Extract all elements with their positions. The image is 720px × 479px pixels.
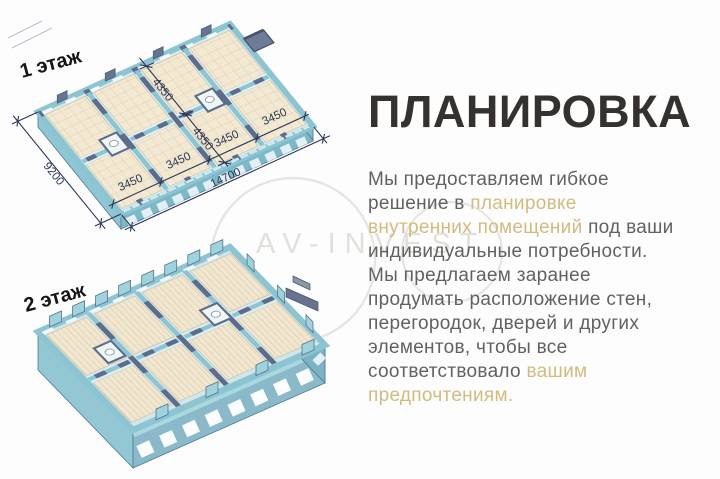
paragraph-text: Мы предоставляем гибкое	[368, 169, 609, 190]
paragraph-line: Мы предоставляем гибкое	[368, 168, 713, 192]
paragraph-line: внутренних помещений под ваши	[368, 216, 713, 240]
paragraph-text: элементов, чтобы все	[368, 337, 567, 358]
paragraph-line: перегородок, дверей и других	[368, 312, 713, 336]
paragraph-text: Мы предлагаем заранее	[368, 265, 591, 286]
description-paragraph: Мы предоставляем гибкое решение в планир…	[368, 168, 713, 408]
highlighted-text: внутренних помещений	[368, 217, 583, 238]
paragraph-line: соответствовало вашим	[368, 360, 713, 384]
paragraph-line: элементов, чтобы все	[368, 336, 713, 360]
paragraph-line: Мы предлагаем заранее	[368, 264, 713, 288]
construction-lines	[8, 21, 52, 48]
slide: AV-INVEST	[0, 0, 720, 479]
paragraph-line: предпочтениям.	[368, 384, 713, 408]
floor-plan-2: 2 этаж	[22, 240, 325, 468]
paragraph-line: продумать расположение стен,	[368, 288, 713, 312]
page-title: ПЛАНИРОВКА	[368, 88, 713, 135]
paragraph-line: индивидуальные потребности.	[368, 240, 713, 264]
paragraph-text: продумать расположение стен,	[368, 289, 652, 310]
paragraph-line: решение в планировке	[368, 192, 713, 216]
plan1-floor-label: 1 этаж	[18, 45, 85, 83]
paragraph-text: перегородок, дверей и других	[368, 313, 639, 334]
highlighted-text: вашим	[526, 361, 587, 382]
paragraph-text: соответствовало	[368, 361, 526, 382]
plan1-top	[7, 9, 348, 243]
paragraph-text: под ваши	[583, 217, 674, 238]
highlighted-text: предпочтениям.	[368, 385, 513, 406]
paragraph-text: индивидуальные потребности.	[368, 241, 648, 262]
paragraph-text: решение в	[368, 193, 470, 214]
highlighted-text: планировке	[470, 193, 576, 214]
dim-total-depth-label: 9200	[41, 160, 66, 187]
text-column: ПЛАНИРОВКА Мы предоставляем гибкое решен…	[368, 88, 713, 135]
floor-plan-1: 1 этаж 9200 14700 3450 3450 3450 3450 43…	[7, 9, 348, 243]
